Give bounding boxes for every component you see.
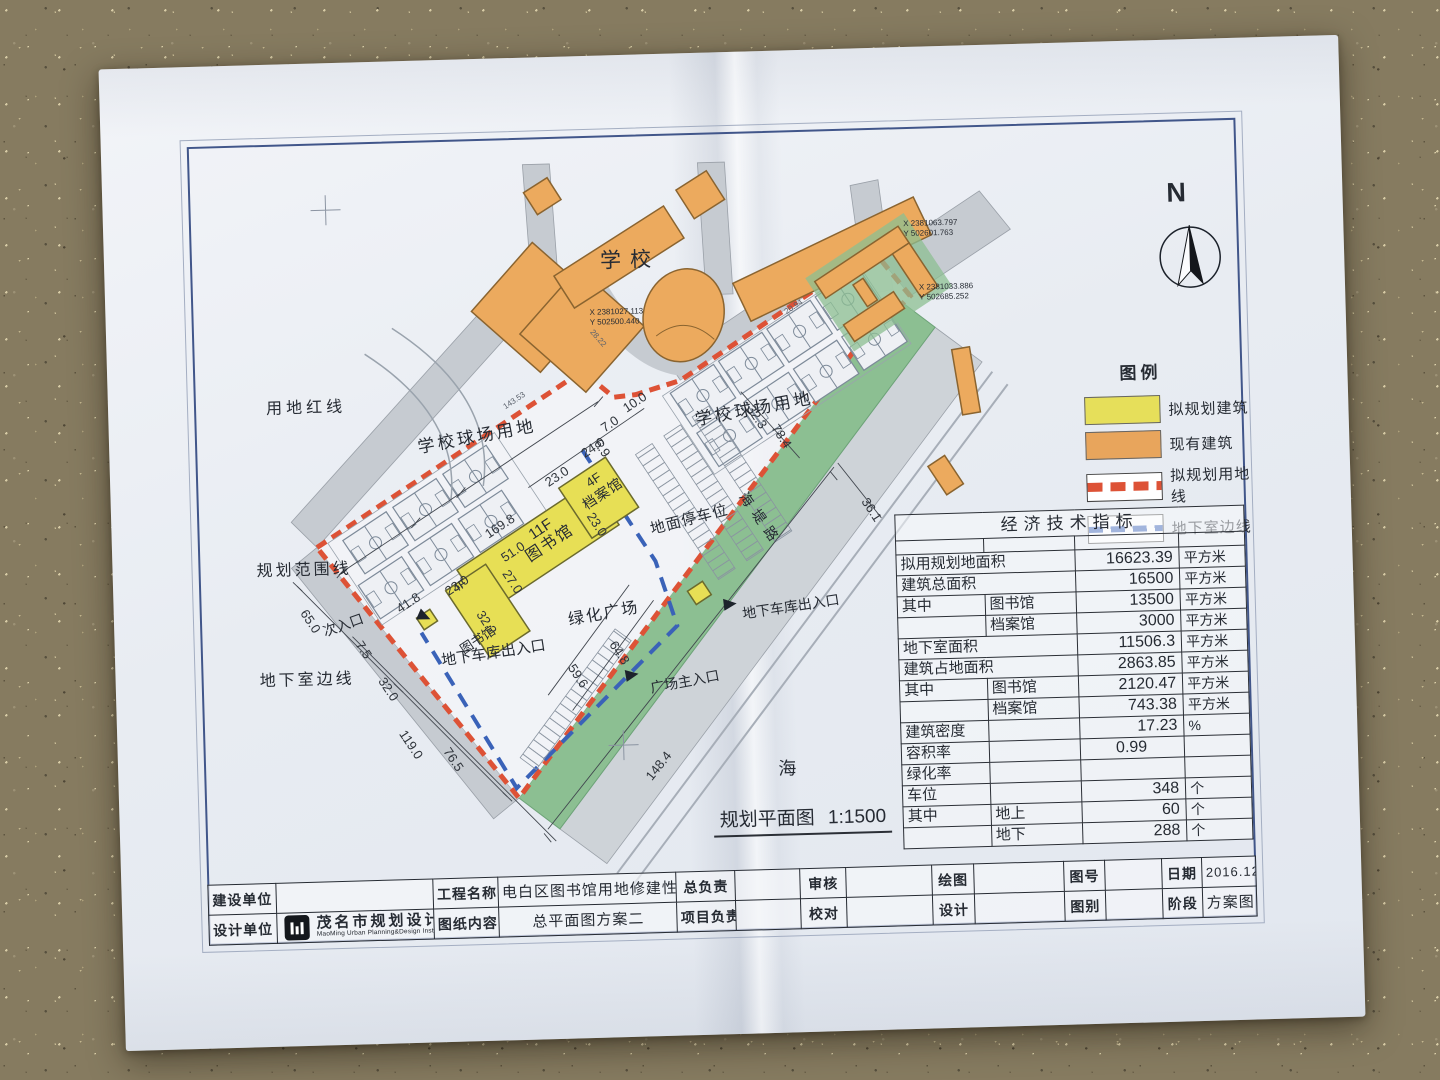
- econ-unit: 平方米: [1181, 629, 1247, 652]
- econ-unit: %: [1184, 713, 1250, 736]
- coordinate-callout: X 2381033.886 Y 502685.252: [919, 281, 974, 303]
- phase-value: 方案图: [1203, 886, 1257, 917]
- econ-label: [900, 699, 988, 722]
- land-red-line-label: 用地红线: [266, 399, 346, 420]
- econ-unit: 平方米: [1183, 692, 1249, 715]
- north-letter: N: [1166, 177, 1186, 209]
- project-lead-value: [736, 899, 802, 931]
- category-value: [1105, 889, 1162, 921]
- legend-item: 拟规划用地线: [1086, 462, 1265, 509]
- econ-unit: [1184, 734, 1250, 757]
- school-label: 学校: [600, 248, 661, 274]
- north-arrow-icon: [1159, 224, 1221, 288]
- project-name-label: 工程名称: [433, 877, 499, 909]
- econ-label: 其中: [897, 594, 985, 617]
- drawing-border-frame: 学校 用地红线 学校球场用地 学校球场用地 规划范围线 次入口 地下室边线 地下…: [187, 118, 1258, 946]
- legend-item-label: 拟规划建筑: [1168, 396, 1249, 419]
- sheet-content-value: 总平面图方案二: [499, 902, 678, 937]
- econ-sublabel: 图书馆: [987, 676, 1079, 700]
- econ-unit: 平方米: [1182, 650, 1248, 673]
- proofread-value: [847, 895, 934, 927]
- econ-value: 2120.47: [1079, 673, 1183, 697]
- proofread-label: 校对: [801, 897, 848, 928]
- entrance-arrow-icon: [625, 668, 640, 682]
- econ-label: 其中: [903, 804, 991, 827]
- proposed-building-swatch: [1084, 395, 1161, 425]
- plan-caption-text: 规划平面图: [719, 808, 815, 832]
- econ-label: 绿化率: [902, 762, 990, 785]
- entrance-arrow-icon: [723, 597, 737, 610]
- drawing-no-value: [1105, 859, 1162, 891]
- econ-sublabel: [988, 718, 1080, 742]
- econ-value: 11506.3: [1078, 631, 1182, 655]
- econ-label: [904, 825, 992, 848]
- legend-item-label: 现有建筑: [1169, 431, 1234, 454]
- review-value: [846, 865, 933, 897]
- construction-unit-value: [276, 879, 434, 913]
- coordinate-y: Y 502685.252: [919, 292, 974, 304]
- econ-sublabel: [990, 781, 1082, 805]
- drafting-label: 绘图: [932, 864, 975, 895]
- plan-scale-text: 1:1500: [828, 806, 887, 829]
- legend-title: 图例: [1119, 355, 1262, 384]
- design-firm-logo-icon: [284, 915, 310, 941]
- econ-value: 0.99: [1080, 736, 1184, 760]
- economic-indicators-table: 经济技术指标 拟用规划地面积16623.39平方米 建筑总面积16500平方米 …: [894, 505, 1253, 850]
- econ-sublabel: 档案馆: [988, 697, 1080, 721]
- review-label: 审核: [800, 867, 847, 898]
- drawing-no-label: 图号: [1064, 860, 1106, 891]
- coordinate-callout: X 2381063.797 Y 502601.763: [903, 218, 958, 240]
- date-value: 2016.12: [1202, 856, 1256, 887]
- econ-value: 60: [1082, 799, 1186, 823]
- econ-value: 288: [1083, 820, 1187, 844]
- basement-edge-label: 地下室边线: [259, 671, 354, 692]
- econ-sublabel: 图书馆: [985, 592, 1077, 616]
- legend-item: 现有建筑: [1085, 427, 1264, 460]
- photo-of-plan-on-gravel: 学校 用地红线 学校球场用地 学校球场用地 规划范围线 次入口 地下室边线 地下…: [0, 0, 1440, 1080]
- econ-value: 16500: [1076, 568, 1180, 592]
- design-label: 设计: [933, 894, 976, 925]
- phase-label: 阶段: [1162, 887, 1204, 918]
- econ-unit: 平方米: [1180, 566, 1246, 589]
- planning-range-line-label: 规划范围线: [256, 561, 351, 582]
- econ-unit: [1185, 755, 1251, 778]
- econ-label: 建筑密度: [901, 720, 989, 743]
- econ-unit: 平方米: [1182, 671, 1248, 694]
- econ-value: 348: [1082, 778, 1186, 802]
- econ-label: 其中: [899, 678, 987, 701]
- econ-sublabel: 档案馆: [985, 613, 1077, 637]
- design-value: [974, 891, 1065, 924]
- date-label: 日期: [1161, 858, 1203, 889]
- coordinate-callout: X 2381027.113 Y 502500.440: [589, 306, 643, 328]
- econ-value: 13500: [1076, 589, 1180, 613]
- project-lead-label: 项目负责: [677, 901, 737, 933]
- econ-sublabel: 地下: [991, 823, 1083, 847]
- econ-value: 2863.85: [1078, 652, 1182, 676]
- econ-unit: 平方米: [1181, 608, 1247, 631]
- design-unit-label: 设计单位: [209, 913, 278, 945]
- legend-item-label: 拟规划用地线: [1170, 462, 1265, 507]
- econ-unit: 个: [1185, 776, 1251, 799]
- econ-value: [1081, 757, 1185, 781]
- econ-sublabel: 地上: [991, 802, 1083, 826]
- drafting-value: [974, 861, 1065, 894]
- coordinate-y: Y 502500.440: [590, 317, 644, 329]
- coordinate-y: Y 502601.763: [903, 228, 958, 240]
- chief-label: 总负责: [676, 871, 736, 903]
- econ-unit: 个: [1186, 797, 1252, 820]
- econ-unit: 平方米: [1179, 545, 1245, 568]
- plan-caption: 规划平面图 1:1500: [713, 806, 892, 838]
- chief-value: [735, 869, 801, 901]
- legend-item: 拟规划建筑: [1084, 392, 1263, 425]
- econ-unit: 个: [1187, 818, 1253, 841]
- econ-value: 743.38: [1079, 694, 1183, 718]
- sea-label: 海: [778, 758, 797, 779]
- econ-sublabel: [989, 760, 1081, 784]
- econ-label: 车位: [902, 783, 990, 806]
- econ-value: 16623.39: [1075, 547, 1179, 571]
- econ-value: 3000: [1077, 610, 1181, 634]
- econ-unit: 平方米: [1180, 587, 1246, 610]
- existing-building-swatch: [1085, 430, 1162, 460]
- sheet-content-label: 图纸内容: [434, 907, 500, 939]
- construction-unit-label: 建设单位: [208, 883, 277, 915]
- econ-label: [898, 615, 986, 638]
- econ-sublabel: [989, 739, 1081, 763]
- boundary-line-swatch: [1086, 472, 1163, 502]
- econ-label: 容积率: [901, 741, 989, 764]
- drawing-paper-sheet: 学校 用地红线 学校球场用地 学校球场用地 规划范围线 次入口 地下室边线 地下…: [99, 35, 1366, 1051]
- design-firm: 茂名市规划设计研究院 MaoMing Urban Planning&Design…: [280, 912, 431, 941]
- econ-value: 17.23: [1080, 715, 1184, 739]
- design-unit-value: 茂名市规划设计研究院 MaoMing Urban Planning&Design…: [277, 909, 435, 943]
- category-label: 图别: [1065, 890, 1107, 921]
